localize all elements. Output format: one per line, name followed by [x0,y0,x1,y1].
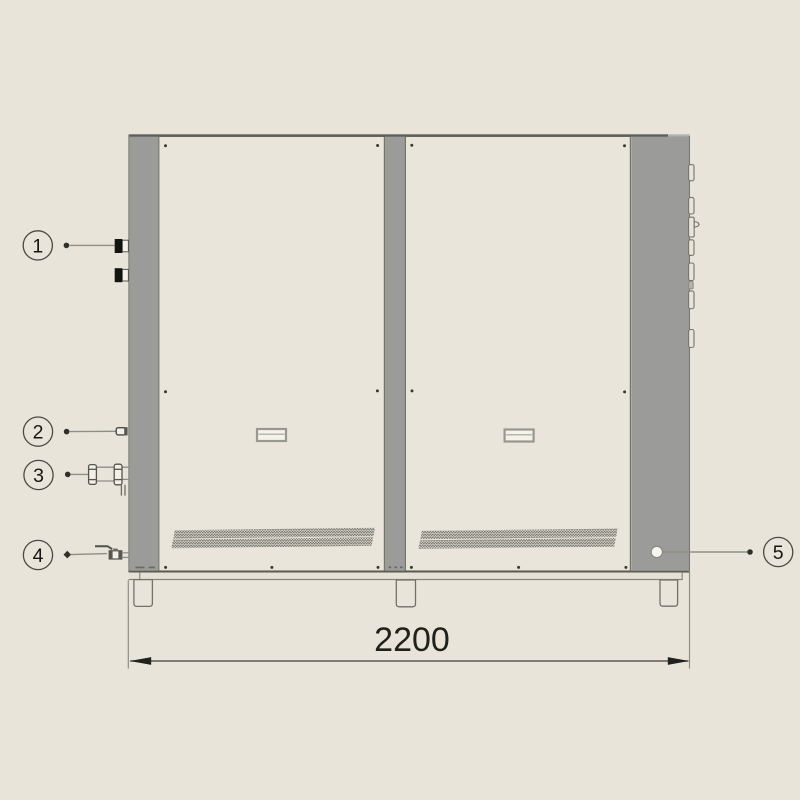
svg-text:2: 2 [33,422,44,444]
svg-text:4: 4 [33,545,44,567]
svg-text:3: 3 [33,465,44,487]
svg-text:5: 5 [773,542,784,564]
svg-text:2200: 2200 [374,621,450,659]
svg-text:1: 1 [32,235,43,257]
